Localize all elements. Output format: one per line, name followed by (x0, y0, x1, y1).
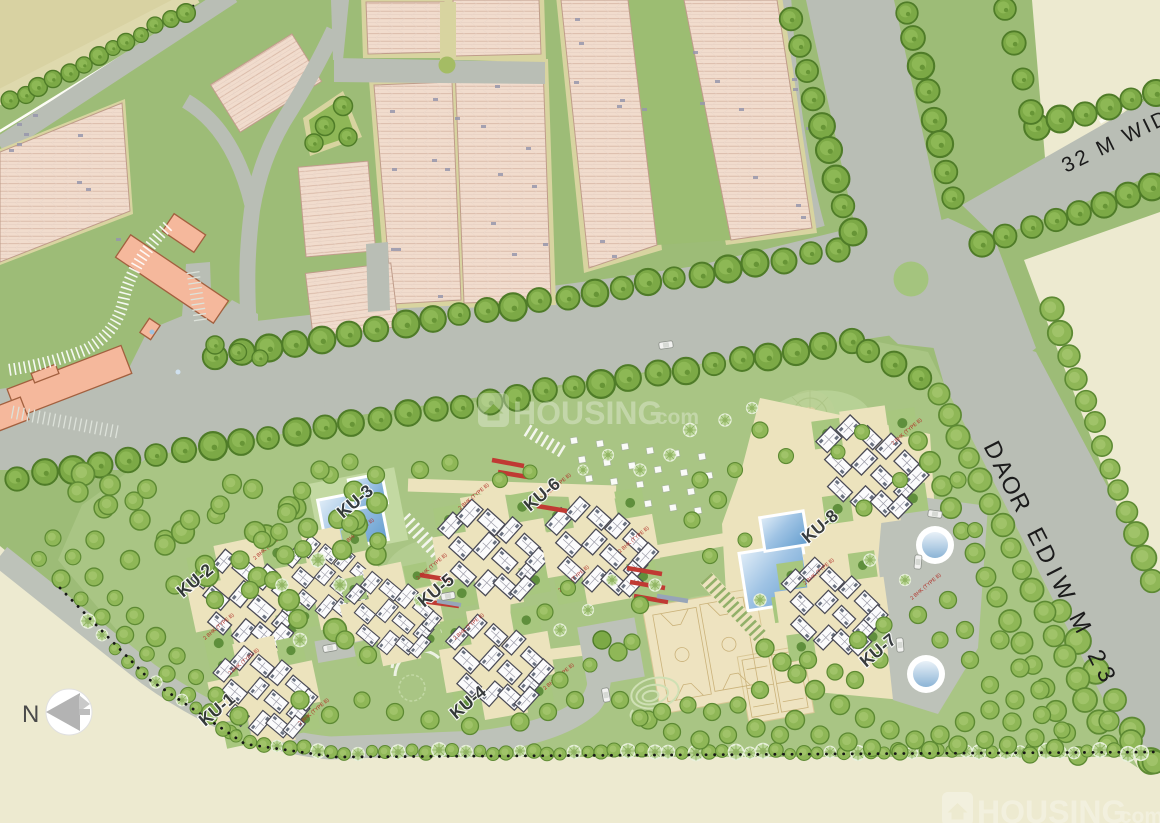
svg-text:.com: .com (1114, 805, 1160, 823)
svg-text:HOUSING: HOUSING (977, 794, 1126, 823)
svg-text:.com: .com (650, 406, 699, 429)
svg-text:N: N (22, 701, 39, 728)
svg-text:HOUSING: HOUSING (513, 395, 662, 431)
